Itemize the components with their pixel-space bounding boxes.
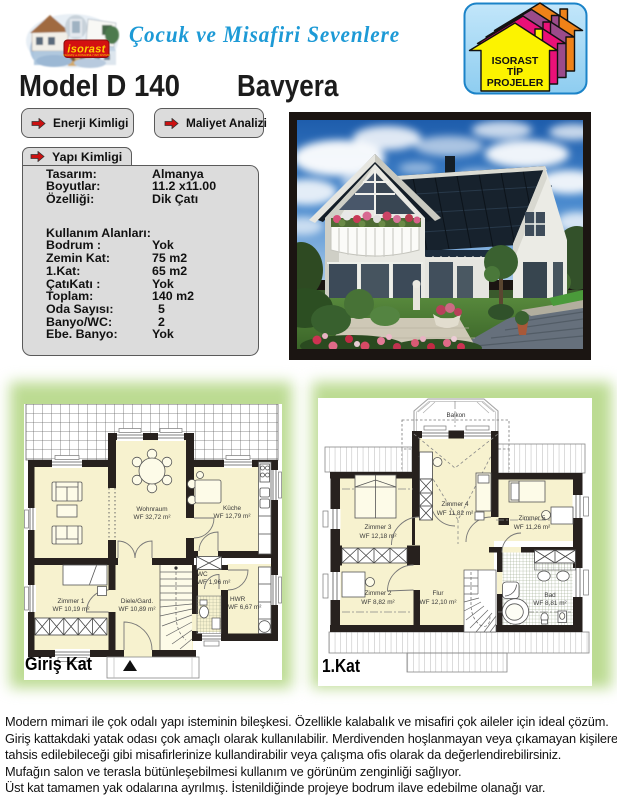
svg-text:WF 11,82 m²: WF 11,82 m² [437,510,473,517]
svg-text:WF 8,82 m²: WF 8,82 m² [361,599,394,606]
svg-text:WC: WC [197,571,208,578]
svg-text:Balkon: Balkon [447,412,466,419]
svg-text:PROJELER: PROJELER [487,77,544,89]
svg-text:Zimmer 3: Zimmer 3 [365,524,392,531]
svg-text:Zimmer 1: Zimmer 1 [58,598,85,605]
svg-text:WF 10,89 m²: WF 10,89 m² [119,606,156,613]
svg-text:WF 10,19 m²: WF 10,19 m² [53,606,90,613]
svg-text:WF 12,10 m²: WF 12,10 m² [420,599,457,606]
svg-text:Zimmer 2: Zimmer 2 [365,590,392,597]
svg-text:Küche: Küche [223,505,242,512]
svg-text:WF 11,26 m²: WF 11,26 m² [514,524,550,531]
svg-text:WF 8,81 m²: WF 8,81 m² [533,600,566,607]
svg-text:Wohnraum: Wohnraum [136,506,167,513]
svg-text:Zimmer 4: Zimmer 4 [442,501,469,508]
svg-text:HWR: HWR [230,596,246,603]
svg-text:Diele/Gard.: Diele/Gard. [121,598,154,605]
svg-text:WF 12,18 m²: WF 12,18 m² [360,533,397,540]
svg-text:WF 6,67 m²: WF 6,67 m² [228,604,261,611]
svg-text:Flur: Flur [432,590,444,597]
svg-text:Bad: Bad [544,592,556,599]
svg-text:WF 12,79 m²: WF 12,79 m² [214,513,251,520]
svg-text:Giriş Kat: Giriş Kat [25,654,92,674]
svg-text:WF 1,96 m²: WF 1,96 m² [197,579,230,586]
svg-text:1.Kat: 1.Kat [322,656,360,676]
svg-text:WF 32,72 m²: WF 32,72 m² [134,514,171,521]
svg-text:Zimmer 5: Zimmer 5 [519,515,546,522]
